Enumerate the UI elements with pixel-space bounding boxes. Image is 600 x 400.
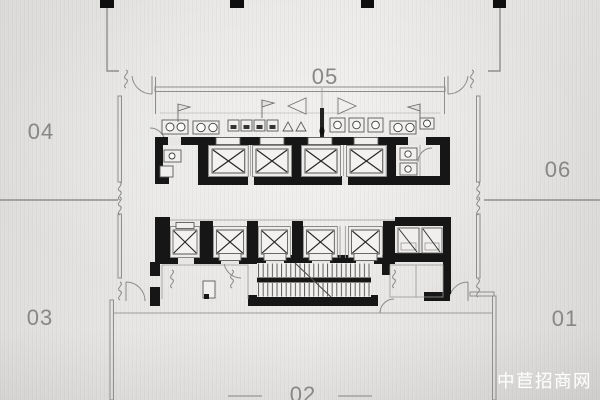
sink-icon bbox=[209, 123, 217, 131]
elevator-icon bbox=[258, 227, 290, 258]
elevator-icon bbox=[209, 146, 249, 177]
column bbox=[361, 0, 374, 8]
toilet-stalls-left bbox=[228, 120, 278, 131]
unit-label-01: 01 bbox=[552, 306, 578, 331]
elevator-icon bbox=[348, 227, 382, 258]
unit-label-04: 04 bbox=[28, 119, 54, 144]
elevator-icon bbox=[347, 146, 387, 177]
elevator-icon bbox=[303, 227, 337, 258]
scissor-stair-icon bbox=[257, 263, 371, 297]
door-swing-icon bbox=[288, 98, 306, 114]
sink-icon bbox=[394, 123, 402, 131]
floor-plan-image: 04 05 06 03 01 02 中苣招商网 bbox=[0, 0, 600, 400]
sink-icon bbox=[166, 123, 174, 131]
unit-partition-walls bbox=[0, 8, 600, 400]
column bbox=[493, 0, 506, 8]
door-swing-icon bbox=[338, 98, 356, 114]
unit-label-02: 02 bbox=[290, 382, 316, 400]
sink-icon bbox=[177, 123, 185, 131]
elevator-icon bbox=[213, 227, 246, 258]
toilet-stalls-right bbox=[330, 118, 383, 132]
floor-plan-drawing: 04 05 06 03 01 02 bbox=[0, 0, 600, 400]
elevator-icon bbox=[302, 146, 341, 177]
sink-icon bbox=[406, 123, 414, 131]
unit-label-05: 05 bbox=[312, 64, 338, 89]
service-shafts bbox=[398, 228, 442, 253]
elevator-icon bbox=[170, 227, 199, 258]
sink-icon bbox=[197, 123, 205, 131]
urinal-icon bbox=[283, 122, 293, 131]
column bbox=[230, 0, 244, 8]
elevator-icon bbox=[253, 146, 292, 177]
watermark: 中苣招商网 bbox=[497, 368, 592, 393]
column bbox=[100, 0, 114, 8]
unit-label-06: 06 bbox=[545, 157, 571, 182]
urinal-icon bbox=[296, 122, 306, 131]
corridor-top-wall bbox=[155, 87, 445, 92]
unit-label-03: 03 bbox=[27, 305, 53, 330]
structural-columns bbox=[100, 0, 506, 8]
